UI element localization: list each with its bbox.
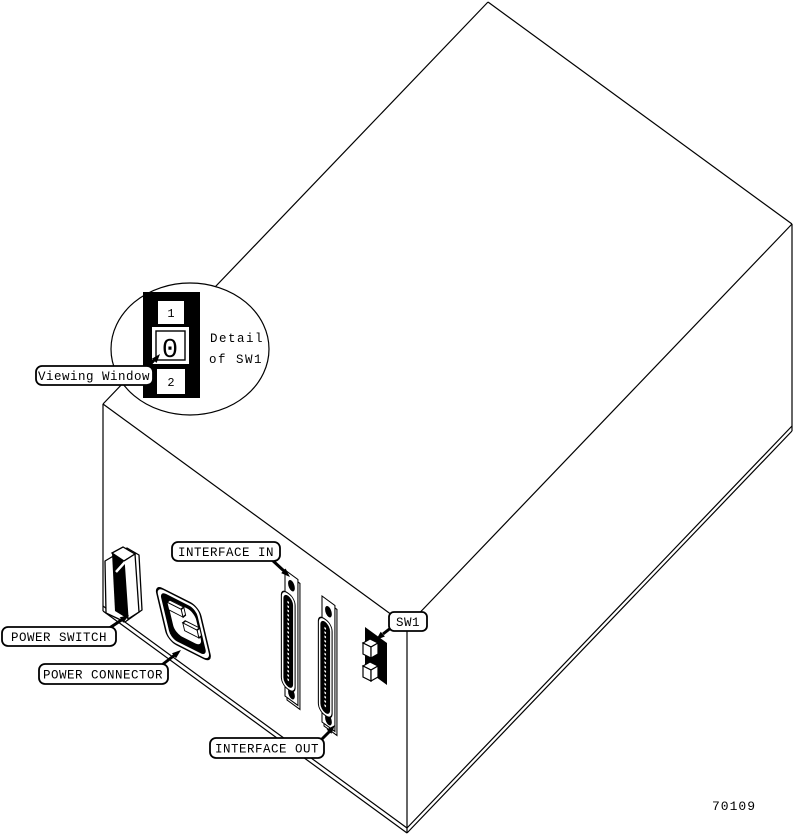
viewing-window-label: Viewing Window — [38, 370, 150, 384]
detail-caption-line1: Detail — [210, 332, 264, 346]
detail-inset: 1 0 2 Detail of SW1 — [111, 283, 269, 415]
figure-number: 70109 — [712, 799, 756, 814]
interface-out-label: INTERFACE OUT — [215, 743, 319, 757]
rear-panel-diagram: 1 0 2 Detail of SW1 — [0, 0, 799, 836]
window-value: 0 — [162, 336, 178, 366]
background — [0, 0, 799, 836]
diagram-canvas: 1 0 2 Detail of SW1 — [0, 0, 799, 836]
detail-caption-line2: of SW1 — [209, 353, 263, 367]
power-switch-label: POWER SWITCH — [11, 631, 107, 645]
power-connector-label: POWER CONNECTOR — [43, 669, 163, 683]
interface-in-label: INTERFACE IN — [178, 546, 274, 560]
power-switch — [105, 547, 142, 622]
position-2-label: 2 — [167, 376, 174, 390]
position-1-label: 1 — [167, 307, 174, 321]
sw1-label: SW1 — [396, 616, 420, 630]
